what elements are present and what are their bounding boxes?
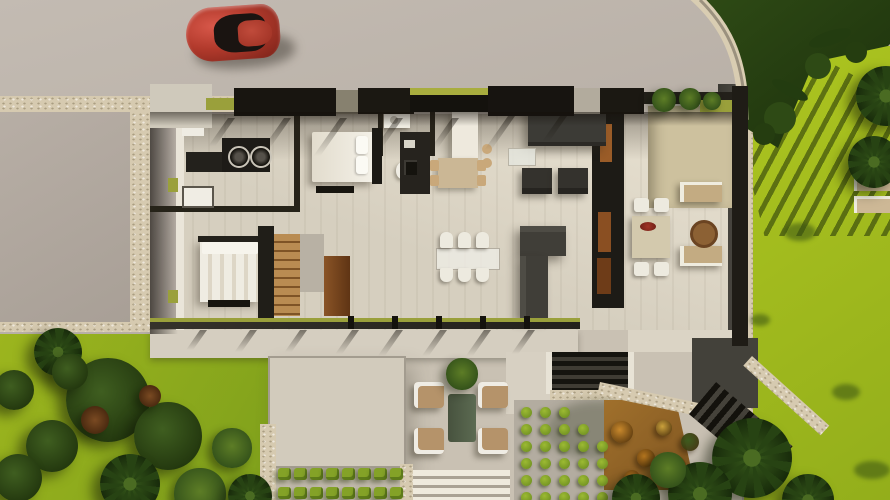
hedge-bush [358,468,371,480]
hedge-bush [326,487,339,499]
shower-tray [182,186,214,208]
staircase-treads [274,234,300,316]
red-shrub [81,406,109,434]
bed-headboard [372,128,382,184]
patio-chair [478,428,508,454]
planting-dot [578,424,589,435]
aerial-render [0,0,890,500]
hedge-bush [342,487,355,499]
white-chair [476,232,489,248]
rear-wall-frame [150,322,580,329]
planting-dot [559,492,570,500]
bed-master-headboard [198,236,262,242]
hedge-bush [294,468,307,480]
planting-dot [521,492,532,500]
white-chair [440,268,453,282]
window-mullion [436,316,442,329]
planting-dot [540,407,551,418]
dining-chair [477,160,486,171]
planting-dot [540,441,551,452]
hedge-bush [342,468,355,480]
fern-plant [446,358,478,390]
fern-plant [650,452,686,488]
outdoor-sofa [680,182,722,202]
lawn-tuft [784,223,816,241]
patio-chair [414,382,444,408]
kitchen-stove [404,160,417,175]
lawn-bench [854,196,890,213]
bed-pillow [356,156,368,174]
patio-chair [478,382,508,408]
dryer-drum [250,146,272,168]
planting-dot [597,492,608,500]
facade-window-gap [336,90,360,114]
fern-plant [652,88,676,112]
window-mullion [480,316,486,329]
media-wall-wood-accent [597,258,611,294]
facade-window-gap [574,88,600,114]
fern-plant [212,428,252,468]
red-shrub [139,385,161,407]
white-chair [458,232,471,248]
dining-table-white [436,248,500,270]
planting-dot [521,424,532,435]
armchair [558,168,588,194]
planting-dot [597,475,608,486]
hedge-bush [390,487,403,499]
lawn-tuft [854,461,890,479]
planting-dot [540,424,551,435]
outdoor-sofa [680,246,722,266]
bed-pillow [356,136,368,154]
house-right-wall [732,86,748,346]
alfresco-chair [634,198,649,212]
window-mullion [392,316,398,329]
parking-pad-border-bottom [0,322,150,332]
planting-dot [521,475,532,486]
planting-dot [559,475,570,486]
planting-dot [559,441,570,452]
facade-wall-dark [410,95,488,112]
mulch-plant [681,433,699,451]
table-flowers [640,222,656,231]
white-chair [476,268,489,282]
round-coffee-table [690,220,718,248]
wall-hall-master [150,206,300,212]
tree-plant [52,354,88,390]
hedge-bush [326,468,339,480]
armchair [522,168,552,194]
kitchen-sink [404,140,415,148]
planting-dot [521,407,532,418]
staircase-cabinet [324,256,350,316]
planting-dot [559,407,570,418]
planting-dot [540,475,551,486]
dining-chair [430,160,439,171]
hedge-bush [374,487,387,499]
planting-dot [597,441,608,452]
tree-plant [0,454,42,500]
white-chair [458,268,471,282]
staircase-landing [300,234,324,292]
garden-steps [408,470,510,500]
sectional-sofa-top [520,226,566,256]
bed-master-bench [208,300,250,307]
planting-dot [597,458,608,469]
hedge-bush [358,487,371,499]
facade-lime-accent [410,88,488,95]
patio-chair [414,428,444,454]
white-chair [440,232,453,248]
lawn-tuft [750,314,770,326]
fern-plant [679,88,701,110]
dining-chair [430,175,439,186]
window-mullion [348,316,354,329]
mulch-plant [656,420,672,436]
left-wall-lime-accent [168,290,178,303]
planting-dot [540,492,551,500]
parking-pad [0,112,132,326]
fern-plant [703,92,721,110]
patio-table [448,394,476,442]
planting-dot [578,441,589,452]
media-wall-wood-accent [598,212,611,252]
hedge-bush [278,487,291,499]
facade-wall-dark [600,88,644,114]
planting-dot [521,441,532,452]
planting-dot [578,475,589,486]
hedge-bush [374,468,387,480]
patio-pad [268,356,406,468]
facade-drop-shadow [150,112,732,126]
hedge-bush [278,468,291,480]
hedge-bush [294,487,307,499]
planting-dot [578,492,589,500]
bed-bench [316,186,354,193]
planting-dot [540,458,551,469]
hedge-bush [310,468,323,480]
alfresco-chair [654,262,669,276]
sectional-sofa-side [520,256,548,318]
hedge-bush [390,468,403,480]
alfresco-chair [654,198,669,212]
alfresco-chair [634,262,649,276]
window-mullion [524,316,530,329]
hedge-bush [310,487,323,499]
mulch-plant [611,421,633,443]
glass-coffee-table [508,148,536,166]
facade-lime-accent [206,98,236,110]
parking-pad-border [130,112,150,326]
dining-chair [477,175,486,186]
washer-drum [228,146,250,168]
facade-wall-dark [358,88,414,114]
left-wall-lime-accent [168,178,178,192]
planting-dot [578,458,589,469]
planting-dot [559,458,570,469]
wardrobe-wall [258,226,274,322]
planting-dot [521,458,532,469]
planting-dot [559,424,570,435]
lawn-tuft [832,384,860,400]
dining-table-kitchen [438,158,478,188]
bed-master-pillows [202,242,258,254]
